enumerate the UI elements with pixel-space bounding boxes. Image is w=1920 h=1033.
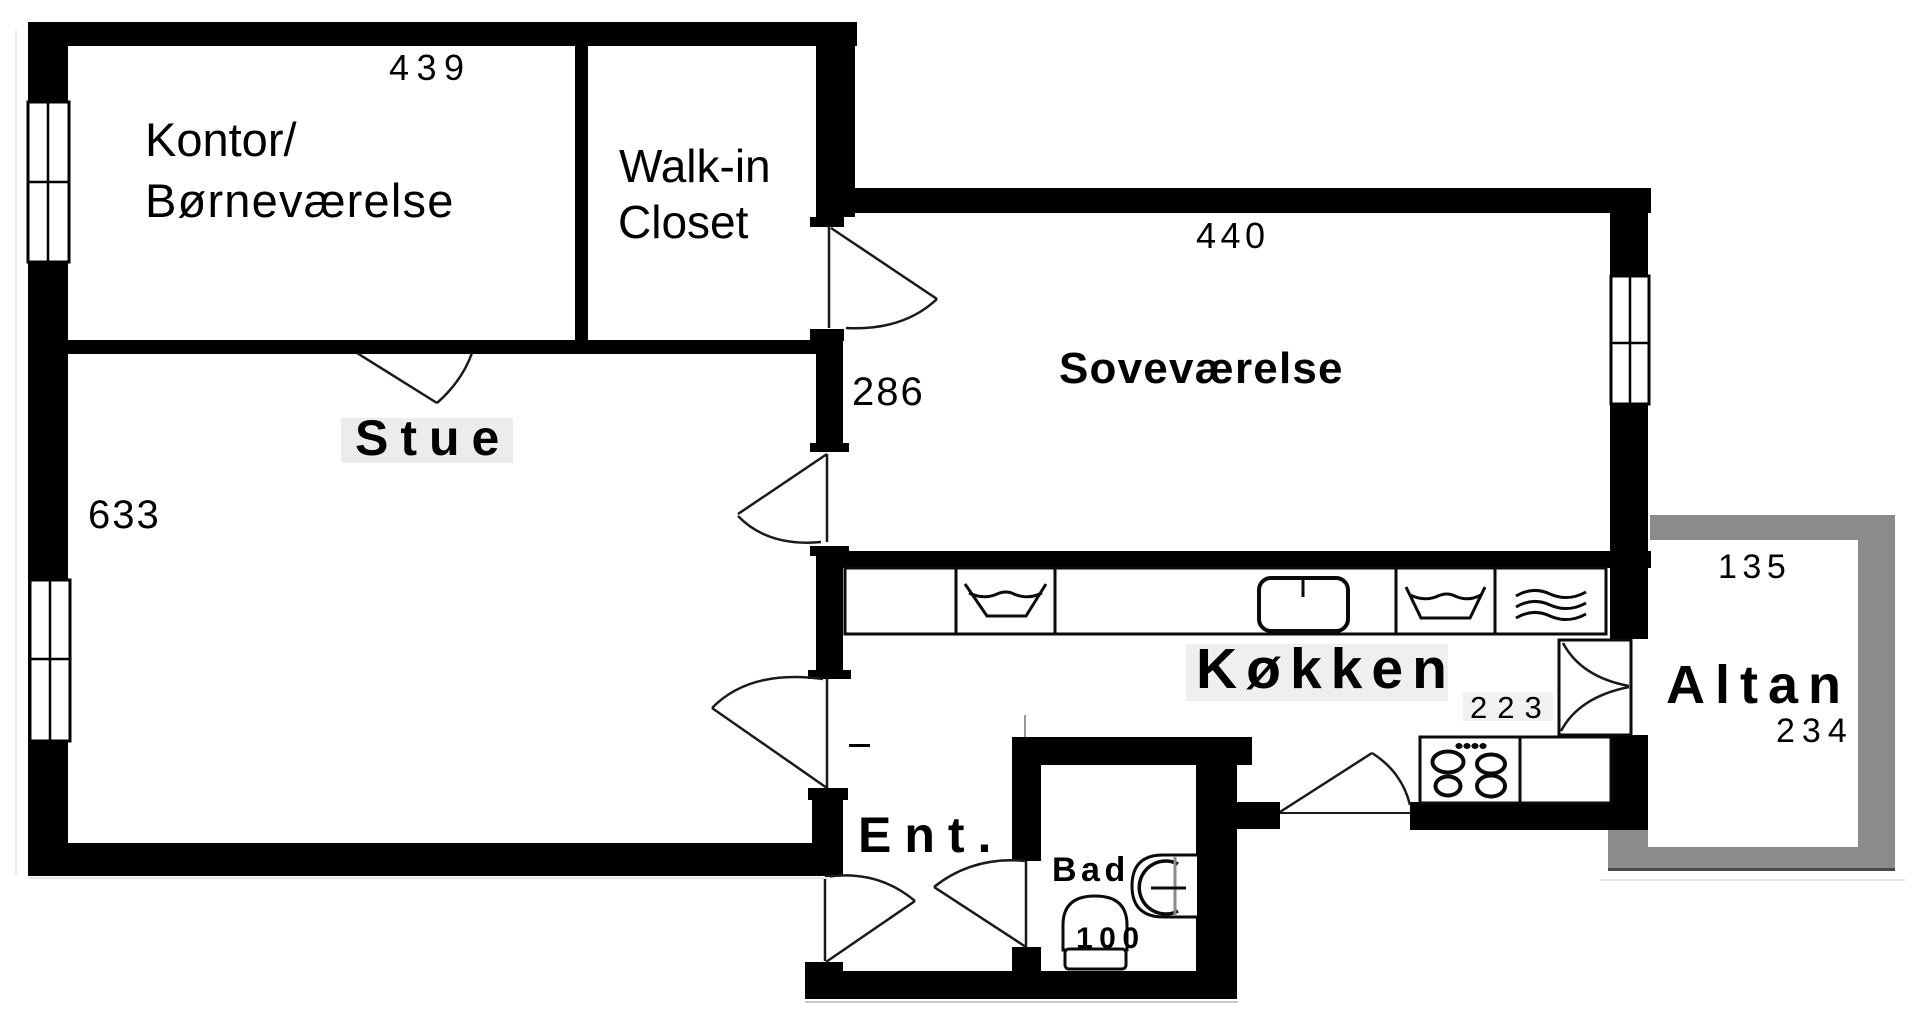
svg-text:286: 286 — [852, 370, 925, 414]
svg-text:Bad: Bad — [1052, 851, 1130, 889]
svg-text:Closet: Closet — [618, 196, 749, 248]
svg-text:633: 633 — [88, 493, 161, 537]
svg-text:234: 234 — [1776, 712, 1854, 750]
svg-text:223: 223 — [1470, 690, 1552, 725]
svg-text:Køkken: Køkken — [1196, 637, 1456, 701]
svg-text:Walk-in: Walk-in — [619, 140, 771, 192]
svg-text:439: 439 — [389, 47, 472, 88]
svg-text:135: 135 — [1718, 548, 1791, 586]
svg-text:Soveværelse: Soveværelse — [1059, 344, 1344, 393]
svg-text:Altan: Altan — [1666, 655, 1851, 715]
svg-text:Stue: Stue — [355, 410, 511, 466]
svg-text:Ent.: Ent. — [858, 807, 1004, 863]
svg-text:Børneværelse: Børneværelse — [145, 174, 455, 227]
svg-text:Kontor/: Kontor/ — [145, 113, 297, 166]
svg-text:100: 100 — [1076, 922, 1146, 955]
svg-text:440: 440 — [1196, 215, 1270, 256]
